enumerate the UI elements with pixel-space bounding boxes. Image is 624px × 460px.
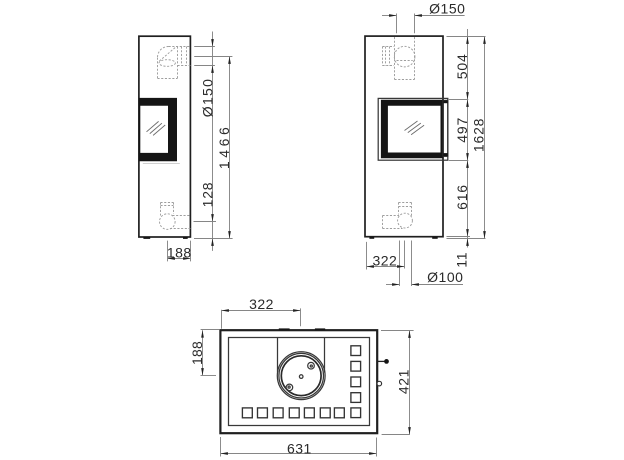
svg-text:11: 11 — [454, 252, 470, 268]
svg-text:Ø150: Ø150 — [429, 1, 465, 17]
svg-text:188: 188 — [189, 341, 205, 365]
svg-text:188: 188 — [167, 244, 192, 260]
svg-text:Ø100: Ø100 — [427, 269, 463, 285]
svg-text:504: 504 — [454, 53, 470, 79]
svg-text:1628: 1628 — [471, 118, 487, 152]
svg-text:631: 631 — [287, 440, 312, 456]
svg-text:616: 616 — [454, 184, 470, 210]
svg-text:322: 322 — [249, 296, 274, 312]
svg-text:421: 421 — [396, 369, 412, 394]
svg-text:128: 128 — [199, 182, 215, 208]
svg-text:1466: 1466 — [216, 124, 232, 170]
svg-text:Ø150: Ø150 — [200, 78, 216, 117]
svg-text:497: 497 — [454, 117, 470, 143]
svg-text:322: 322 — [372, 252, 397, 268]
